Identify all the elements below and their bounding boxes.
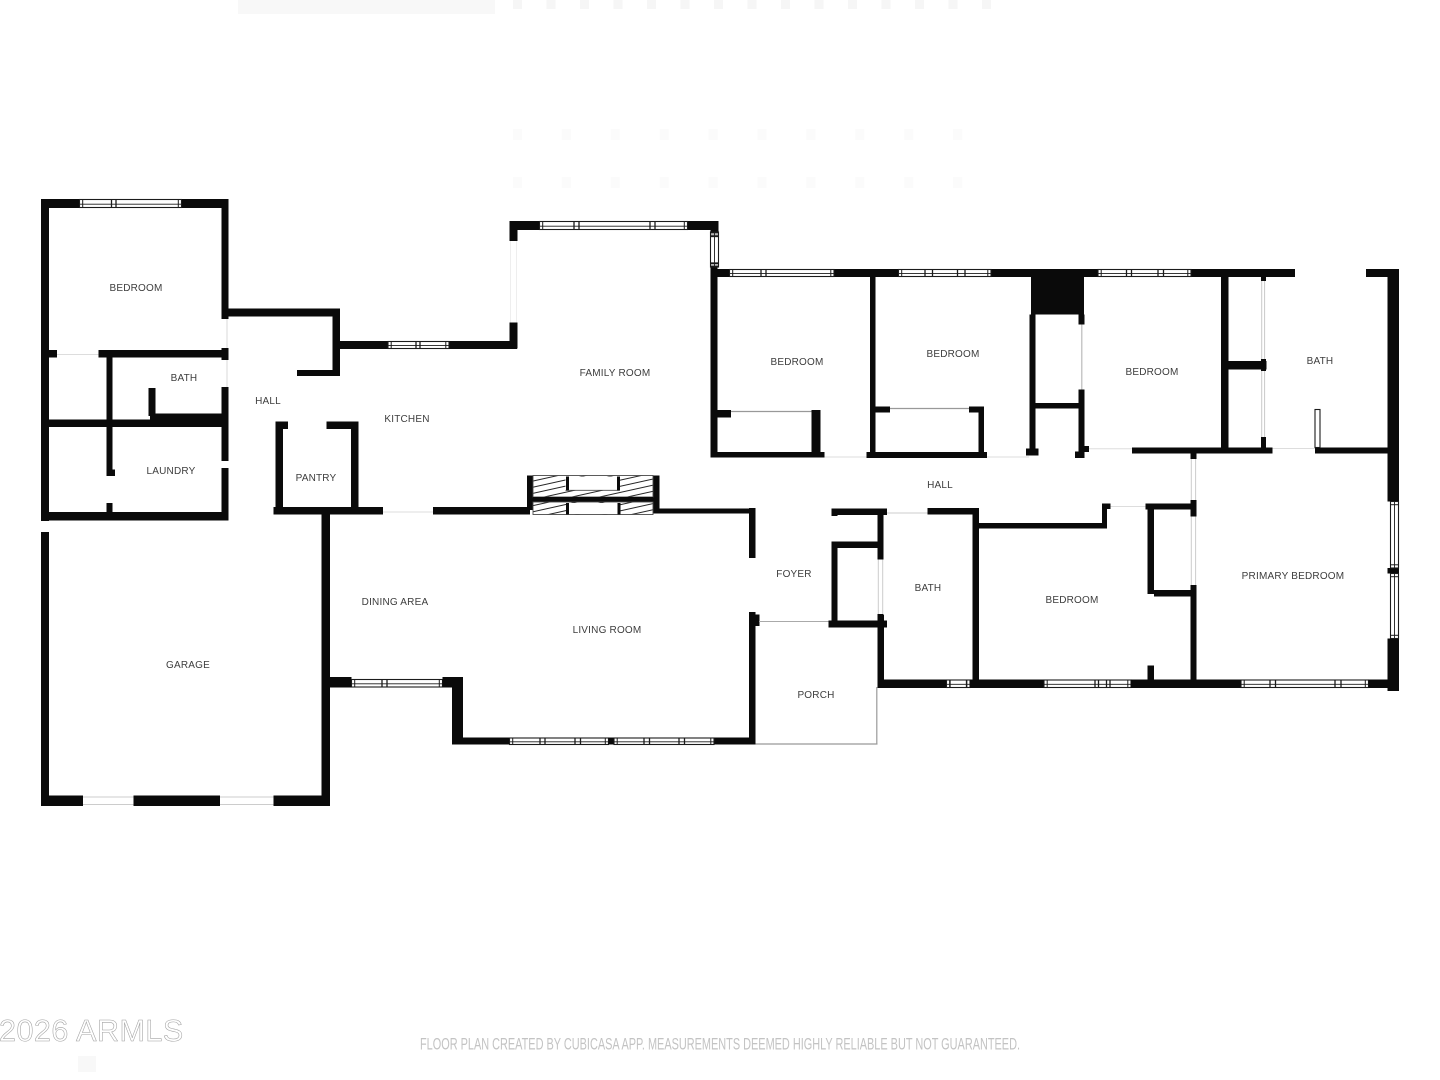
svg-text:LIVING ROOM: LIVING ROOM [573, 625, 642, 636]
svg-text:BEDROOM: BEDROOM [770, 357, 823, 368]
svg-text:2026 ARMLS: 2026 ARMLS [0, 1014, 184, 1048]
svg-text:HALL: HALL [927, 480, 953, 491]
svg-text:BEDROOM: BEDROOM [926, 349, 979, 360]
svg-text:PANTRY: PANTRY [296, 473, 337, 484]
svg-text:BEDROOM: BEDROOM [1125, 367, 1178, 378]
svg-text:FLOOR PLAN CREATED BY CUBICASA: FLOOR PLAN CREATED BY CUBICASA APP. MEAS… [420, 1036, 1020, 1054]
svg-text:HALL: HALL [255, 396, 281, 407]
svg-text:BEDROOM: BEDROOM [109, 283, 162, 294]
svg-text:BATH: BATH [1307, 356, 1334, 367]
svg-text:GARAGE: GARAGE [166, 660, 210, 671]
svg-text:KITCHEN: KITCHEN [384, 414, 429, 425]
svg-text:FAMILY ROOM: FAMILY ROOM [580, 368, 651, 379]
svg-text:BEDROOM: BEDROOM [1045, 595, 1098, 606]
svg-text:PRIMARY BEDROOM: PRIMARY BEDROOM [1242, 571, 1345, 582]
svg-text:BATH: BATH [915, 583, 942, 594]
svg-text:LAUNDRY: LAUNDRY [146, 466, 195, 477]
svg-text:PORCH: PORCH [797, 690, 834, 701]
svg-text:DINING AREA: DINING AREA [362, 597, 429, 608]
svg-text:BATH: BATH [171, 373, 198, 384]
svg-text:FOYER: FOYER [776, 569, 811, 580]
